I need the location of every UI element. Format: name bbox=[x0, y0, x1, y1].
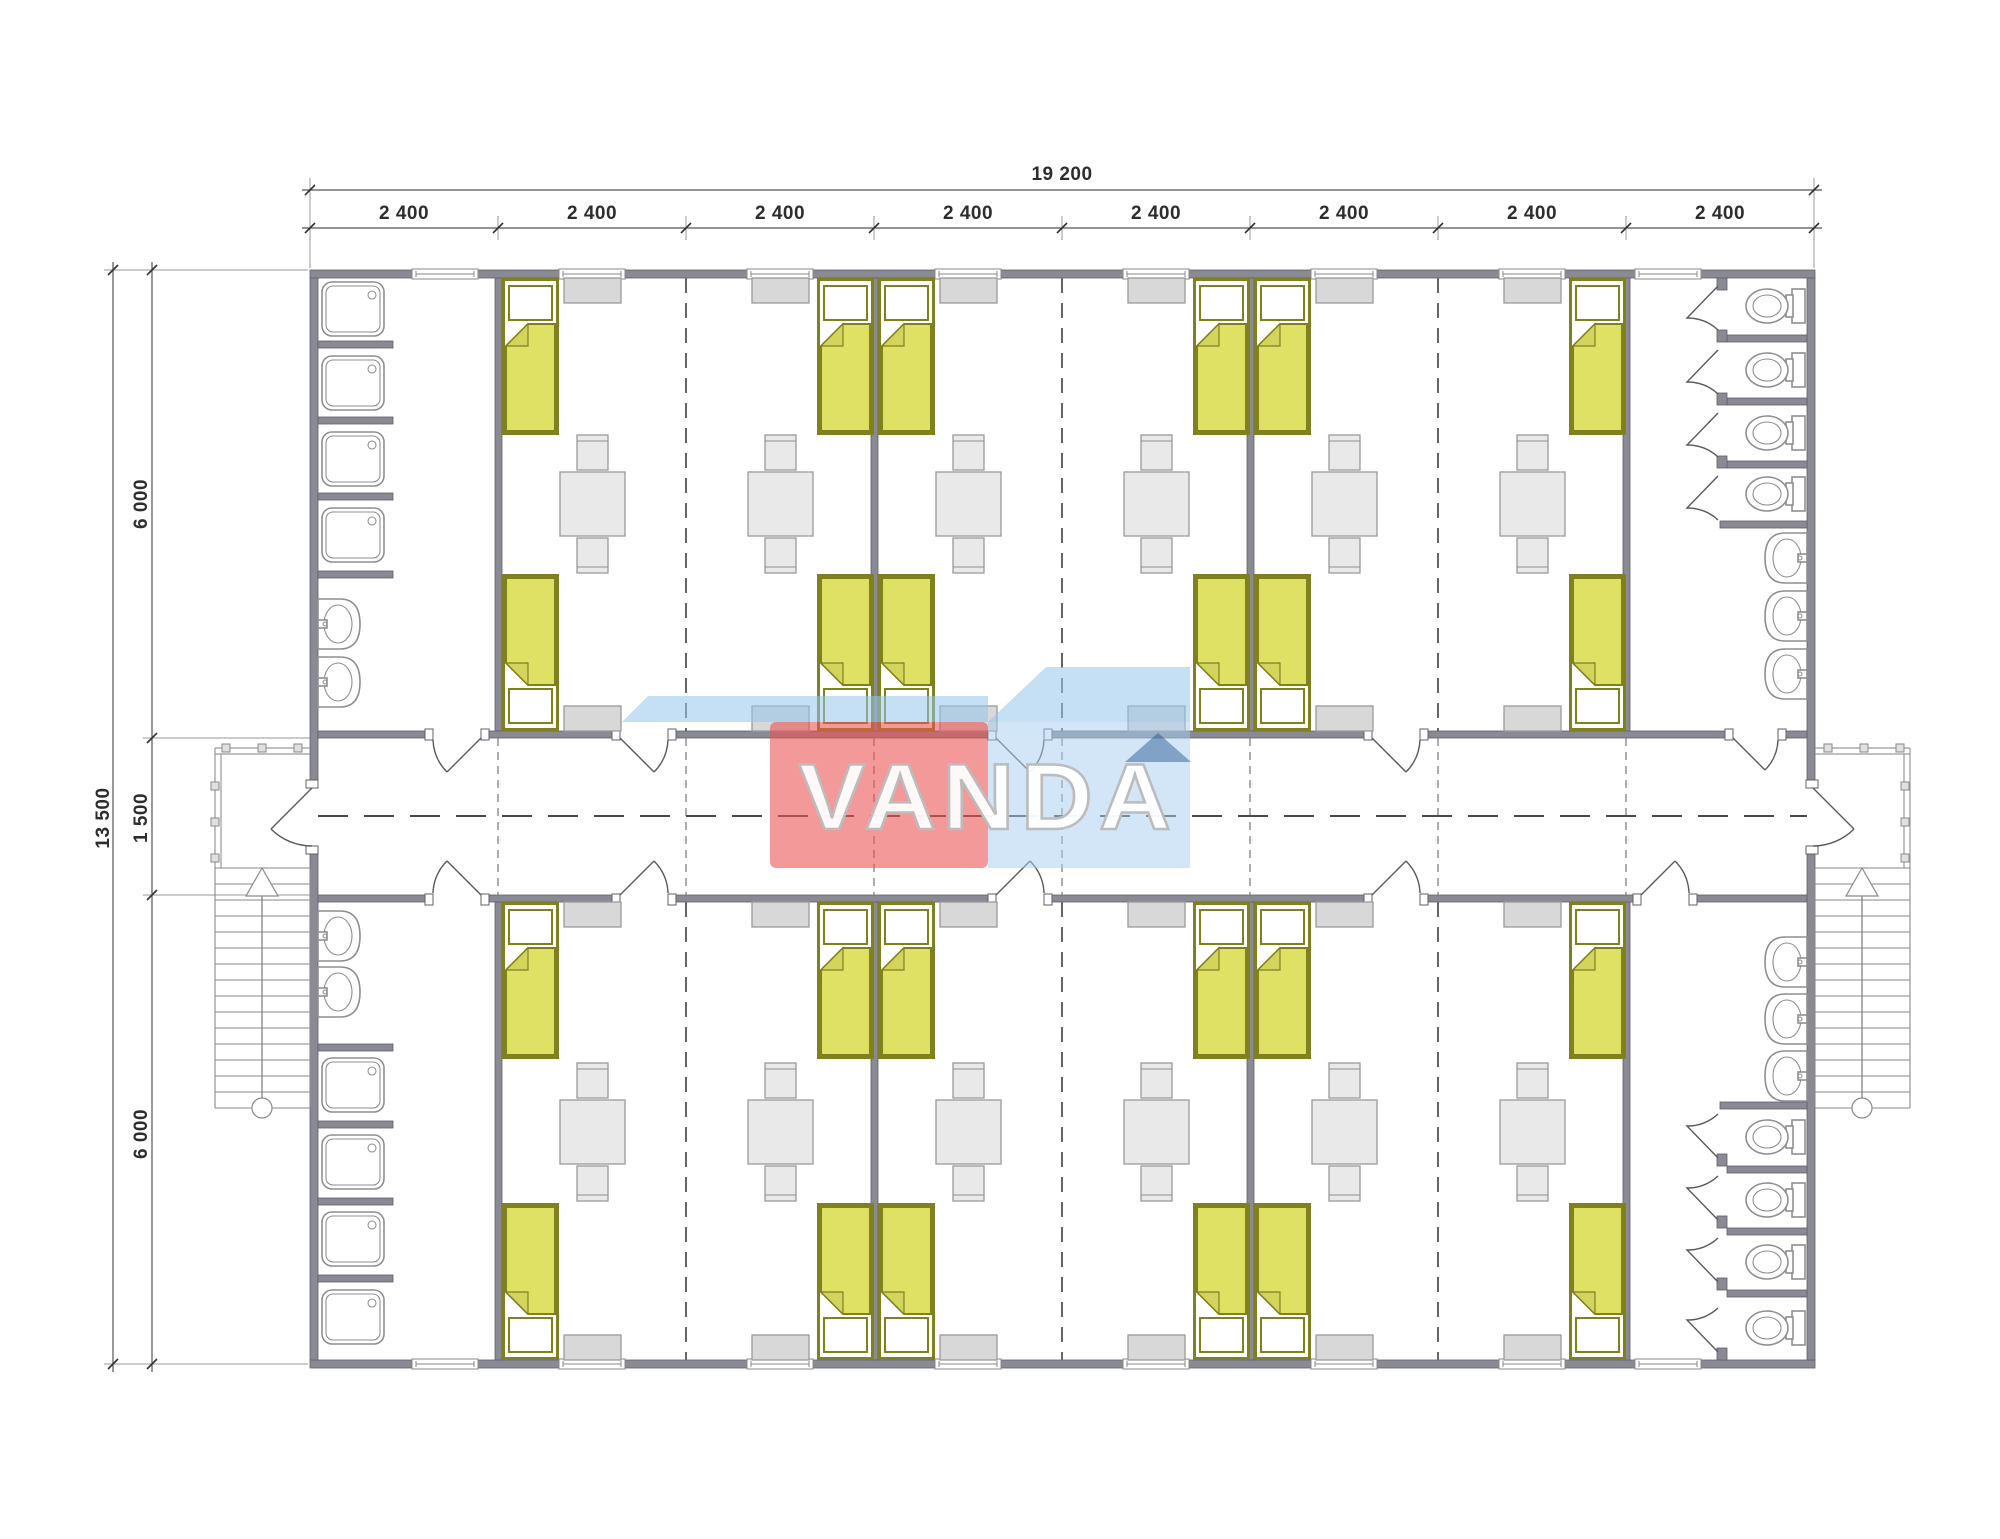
window-icon bbox=[1635, 1359, 1701, 1369]
cabinet-icon bbox=[940, 706, 997, 731]
bed-icon bbox=[1195, 904, 1249, 1058]
shower-tray-icon bbox=[322, 508, 384, 562]
dim-segment: 2 400 bbox=[730, 203, 830, 225]
table-chairs-icon bbox=[936, 1063, 1001, 1201]
cabinet-icon bbox=[1316, 706, 1373, 731]
radiator-icon bbox=[940, 278, 997, 303]
dim-segment: 2 400 bbox=[542, 203, 642, 225]
radiator-icon bbox=[1316, 278, 1373, 303]
dim-segment: 2 400 bbox=[918, 203, 1018, 225]
cabinet-icon bbox=[564, 706, 621, 731]
floor-plan-canvas: VANDA 19 200 2 400 2 400 2 400 2 400 2 4… bbox=[0, 0, 2000, 1539]
stair-direction-arrow bbox=[246, 868, 278, 896]
sink-icon bbox=[1765, 937, 1807, 987]
radiator-icon bbox=[752, 278, 809, 303]
table-chairs-icon bbox=[1312, 1063, 1377, 1201]
radiator-icon bbox=[564, 278, 621, 303]
sink-icon bbox=[1765, 649, 1807, 699]
radiator-icon bbox=[940, 1335, 997, 1360]
shower-tray-icon bbox=[322, 1290, 384, 1344]
radiator-icon bbox=[564, 1335, 621, 1360]
dim-segment: 2 400 bbox=[1482, 203, 1582, 225]
table-chairs-icon bbox=[560, 1063, 625, 1201]
dim-segment: 2 400 bbox=[1106, 203, 1206, 225]
bed-icon bbox=[1256, 280, 1310, 434]
stairs-west bbox=[215, 868, 310, 1118]
bed-icon bbox=[819, 576, 873, 730]
bed-icon bbox=[880, 904, 934, 1058]
shower-tray-icon bbox=[322, 356, 384, 410]
table-chairs-icon bbox=[748, 1063, 813, 1201]
cabinet-icon bbox=[752, 902, 809, 927]
bed-icon bbox=[880, 576, 934, 730]
toilet-icon bbox=[1746, 1245, 1805, 1279]
dim-segment: 2 400 bbox=[1670, 203, 1770, 225]
cabinet-icon bbox=[752, 706, 809, 731]
table-chairs-icon bbox=[1124, 1063, 1189, 1201]
bed-icon bbox=[504, 1205, 558, 1359]
bed-icon bbox=[819, 1205, 873, 1359]
bed-icon bbox=[819, 904, 873, 1058]
cabinet-icon bbox=[940, 902, 997, 927]
table-chairs-icon bbox=[1500, 435, 1565, 573]
table-chairs-icon bbox=[936, 435, 1001, 573]
window-icon bbox=[412, 1359, 478, 1369]
radiator-icon bbox=[1504, 1335, 1561, 1360]
shower-tray-icon bbox=[322, 1058, 384, 1112]
toilet-icon bbox=[1746, 416, 1805, 450]
table-chairs-icon bbox=[560, 435, 625, 573]
cabinet-icon bbox=[1316, 902, 1373, 927]
dim-segment: 2 400 bbox=[1294, 203, 1394, 225]
bed-icon bbox=[819, 280, 873, 434]
toilet-icon bbox=[1746, 289, 1805, 323]
floor-plan-drawing bbox=[0, 0, 2000, 1539]
module-joint-lines bbox=[318, 278, 1807, 1360]
sink-icon bbox=[1765, 994, 1807, 1044]
shower-tray-icon bbox=[322, 282, 384, 336]
stairs-east bbox=[1815, 868, 1910, 1118]
sink-icon bbox=[318, 911, 360, 961]
bed-icon bbox=[880, 1205, 934, 1359]
window-icon bbox=[412, 269, 478, 279]
dim-segment: 6 000 bbox=[131, 1074, 153, 1194]
dim-segment: 1 500 bbox=[131, 758, 153, 878]
radiator-icon bbox=[1504, 278, 1561, 303]
radiator-icon bbox=[1316, 1335, 1373, 1360]
sink-icon bbox=[318, 599, 360, 649]
toilet-icon bbox=[1746, 477, 1805, 511]
table-chairs-icon bbox=[748, 435, 813, 573]
doors bbox=[271, 286, 1854, 1352]
bed-icon bbox=[1195, 280, 1249, 434]
window-icon bbox=[1635, 269, 1701, 279]
cabinet-icon bbox=[1128, 706, 1185, 731]
bed-icon bbox=[1571, 1205, 1625, 1359]
bed-icon bbox=[1195, 1205, 1249, 1359]
bed-icon bbox=[504, 576, 558, 730]
bed-icon bbox=[1256, 1205, 1310, 1359]
toilet-icon bbox=[1746, 353, 1805, 387]
bed-icon bbox=[1571, 576, 1625, 730]
table-chairs-icon bbox=[1500, 1063, 1565, 1201]
toilet-icon bbox=[1746, 1311, 1805, 1345]
bed-icon bbox=[504, 280, 558, 434]
bed-icon bbox=[1571, 280, 1625, 434]
radiator-icon bbox=[1128, 278, 1185, 303]
sink-icon bbox=[318, 657, 360, 707]
cabinet-icon bbox=[1504, 706, 1561, 731]
sink-icon bbox=[1765, 533, 1807, 583]
windows bbox=[412, 269, 1701, 1369]
shower-tray-icon bbox=[322, 432, 384, 486]
shower-tray-icon bbox=[322, 1135, 384, 1189]
bed-icon bbox=[880, 280, 934, 434]
sink-icon bbox=[1765, 591, 1807, 641]
table-chairs-icon bbox=[1312, 435, 1377, 573]
toilet-icon bbox=[1746, 1120, 1805, 1154]
cabinet-icon bbox=[1504, 902, 1561, 927]
porches bbox=[211, 744, 1910, 868]
bed-icon bbox=[1195, 576, 1249, 730]
toilet-icon bbox=[1746, 1183, 1805, 1217]
cabinet-icon bbox=[564, 902, 621, 927]
sink-icon bbox=[318, 967, 360, 1017]
shower-tray-icon bbox=[322, 1212, 384, 1266]
bed-icon bbox=[1256, 576, 1310, 730]
bed-icon bbox=[1571, 904, 1625, 1058]
dim-total-width: 19 200 bbox=[1012, 164, 1112, 186]
bed-icon bbox=[1256, 904, 1310, 1058]
cabinet-icon bbox=[1128, 902, 1185, 927]
stair-direction-arrow bbox=[1846, 868, 1878, 896]
sink-icon bbox=[1765, 1051, 1807, 1101]
dim-segment: 2 400 bbox=[354, 203, 454, 225]
table-chairs-icon bbox=[1124, 435, 1189, 573]
dim-segment: 6 000 bbox=[131, 444, 153, 564]
bed-icon bbox=[504, 904, 558, 1058]
dim-total-depth: 13 500 bbox=[93, 758, 115, 878]
radiator-icon bbox=[1128, 1335, 1185, 1360]
radiator-icon bbox=[752, 1335, 809, 1360]
beds bbox=[504, 280, 1625, 1359]
